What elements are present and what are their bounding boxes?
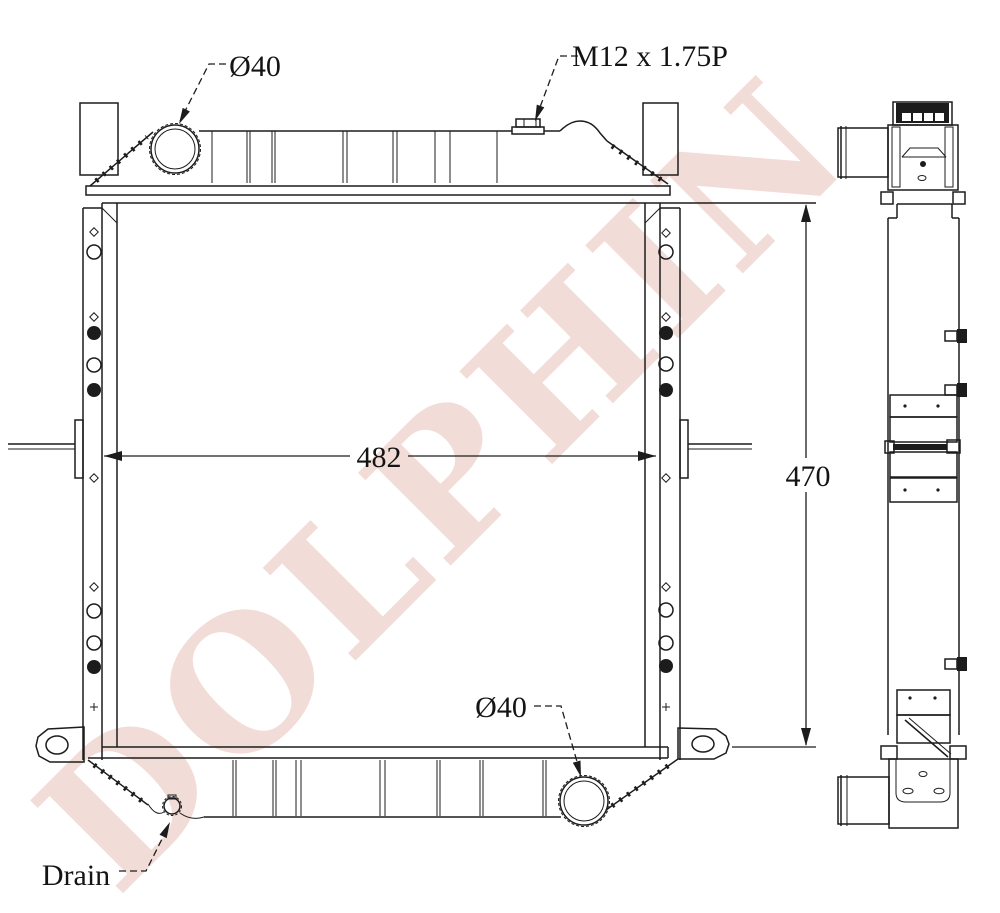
drawing-canvas: DOLPHIN (0, 0, 1000, 913)
side-tab-right (680, 420, 752, 478)
side-tab-left (8, 420, 83, 478)
label-inlet-diameter: Ø40 (179, 50, 281, 124)
top-left-mount-post (80, 103, 118, 175)
drain-text: Drain (42, 859, 110, 892)
core-height-value: 470 (786, 460, 831, 493)
side-clips (945, 329, 967, 671)
side-member-left (8, 203, 117, 760)
watermark-text: DOLPHIN (0, 38, 890, 913)
inlet-port (150, 124, 201, 175)
arrow-right (638, 451, 656, 461)
arrow-down (801, 728, 811, 746)
mounting-holes-left (87, 228, 101, 711)
arrow-left (104, 451, 122, 461)
core-width-value: 482 (357, 441, 402, 474)
radiator-technical-drawing: DOLPHIN (0, 0, 1000, 913)
top-header-plate (86, 186, 670, 195)
side-cap (893, 102, 952, 125)
side-top-tank (888, 125, 958, 190)
inlet-diameter-text: Ø40 (229, 50, 281, 83)
side-shroud-bands (885, 395, 960, 502)
filler-thread-text: M12 x 1.75P (572, 40, 728, 73)
top-tank-ribs (212, 131, 497, 183)
label-outlet-diameter: Ø40 (475, 691, 581, 777)
mounting-foot-right (678, 728, 729, 759)
side-outlet-pipe (838, 775, 889, 826)
outlet-port (559, 776, 610, 827)
side-bottom-tank (881, 690, 966, 828)
side-core-column (888, 204, 959, 735)
outlet-diameter-text: Ø40 (475, 691, 527, 724)
filler-bolt (512, 119, 544, 134)
side-top-brackets (881, 192, 965, 204)
